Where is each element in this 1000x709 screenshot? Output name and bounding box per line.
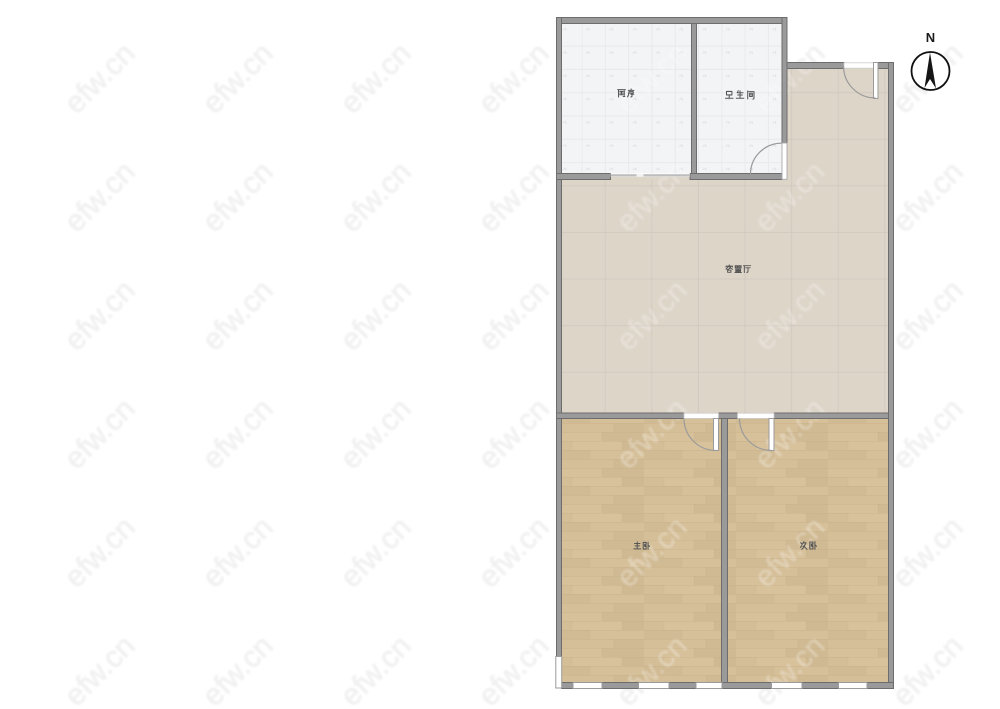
svg-text:N: N xyxy=(926,30,935,45)
